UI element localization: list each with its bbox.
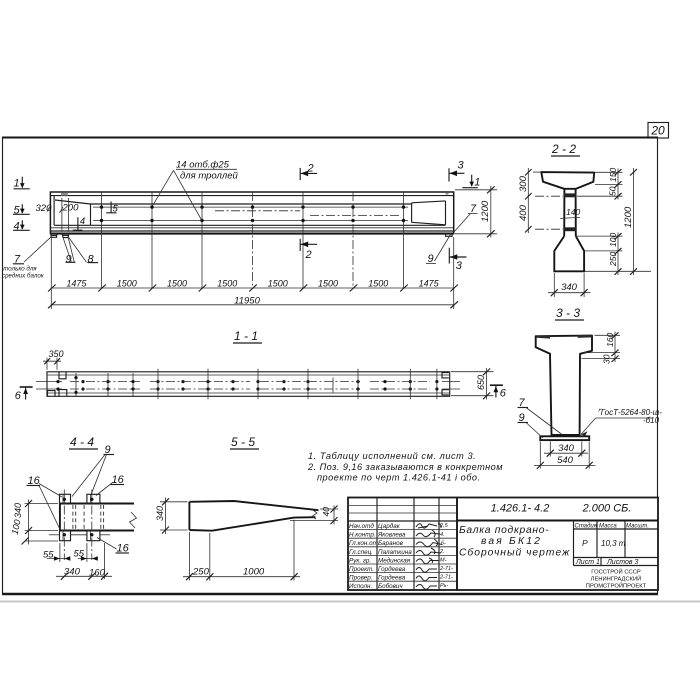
svg-text:2 - 2: 2 - 2 xyxy=(551,142,576,156)
svg-text:1.426.1- 4.2: 1.426.1- 4.2 xyxy=(491,503,550,515)
svg-text:2: 2 xyxy=(307,162,314,174)
svg-text:4: 4 xyxy=(80,216,85,227)
svg-text:400: 400 xyxy=(518,204,529,221)
svg-text:20: 20 xyxy=(650,124,665,138)
svg-text:Цардак: Цардак xyxy=(378,522,401,530)
svg-text:250: 250 xyxy=(192,567,210,578)
svg-text:Палаткина: Палаткина xyxy=(378,549,412,556)
svg-text:2,5: 2,5 xyxy=(439,523,449,529)
svg-text:340: 340 xyxy=(561,282,578,293)
svg-text:3: 3 xyxy=(456,260,463,272)
svg-text:2: 2 xyxy=(305,249,312,261)
svg-text:1200: 1200 xyxy=(480,200,491,222)
svg-text:140: 140 xyxy=(566,207,580,217)
svg-text:340: 340 xyxy=(13,503,23,518)
svg-text:1475: 1475 xyxy=(66,278,87,288)
svg-text:2.000 СБ.: 2.000 СБ. xyxy=(582,503,632,515)
svg-text:1 - 1: 1 - 1 xyxy=(234,329,258,343)
svg-text:4.: 4. xyxy=(440,532,445,538)
svg-text:6-: 6- xyxy=(441,541,446,547)
svg-text:для троллей: для троллей xyxy=(180,171,238,182)
svg-text:3 - 3: 3 - 3 xyxy=(556,306,580,320)
svg-text:Сборочный чертеж: Сборочный чертеж xyxy=(459,547,570,559)
svg-text:5: 5 xyxy=(113,204,119,215)
svg-text:160: 160 xyxy=(605,333,615,347)
svg-text:М-: М- xyxy=(440,558,447,564)
svg-text:ГОССТРОЙ СССР: ГОССТРОЙ СССР xyxy=(591,568,641,576)
svg-text:350: 350 xyxy=(49,349,64,359)
svg-text:Рук. гр.: Рук. гр. xyxy=(349,557,371,564)
svg-text:1: 1 xyxy=(474,176,480,188)
svg-text:6: 6 xyxy=(15,390,22,402)
svg-text:160: 160 xyxy=(89,568,106,579)
svg-text:1500: 1500 xyxy=(117,278,137,288)
svg-text:2.: 2. xyxy=(439,549,445,555)
svg-text:-б10: -б10 xyxy=(643,416,660,425)
svg-text:320: 320 xyxy=(36,203,53,214)
svg-text:1500: 1500 xyxy=(368,278,388,288)
svg-text:10,3 т: 10,3 т xyxy=(601,539,626,548)
svg-text:340: 340 xyxy=(155,506,165,521)
svg-text:Гордеева: Гордеева xyxy=(378,565,406,573)
svg-text:5 - 5: 5 - 5 xyxy=(231,435,255,449)
svg-text:Р: Р xyxy=(582,538,588,548)
svg-text:5: 5 xyxy=(14,205,21,217)
svg-text:1475: 1475 xyxy=(419,278,440,288)
svg-text:Бобович: Бобович xyxy=(378,582,403,590)
svg-text:Гордеева: Гордеева xyxy=(378,574,406,582)
svg-text:650: 650 xyxy=(476,375,486,390)
svg-text:Исполн.: Исполн. xyxy=(349,583,372,590)
svg-text:2. Поз. 9,16 заказываются в ко: 2. Поз. 9,16 заказываются в конкретном xyxy=(307,462,503,472)
svg-text:150: 150 xyxy=(608,168,618,182)
svg-text:средних балок: средних балок xyxy=(2,272,45,279)
svg-text:50: 50 xyxy=(608,186,618,196)
svg-text:250: 250 xyxy=(608,252,618,267)
svg-text:Балка подкрано-: Балка подкрано- xyxy=(459,525,549,536)
svg-text:Лист 1: Лист 1 xyxy=(575,559,600,566)
svg-text:1200: 1200 xyxy=(623,206,634,228)
svg-text:Провер.: Провер. xyxy=(349,575,372,582)
svg-text:Проект.: Проект. xyxy=(349,566,374,573)
svg-text:8: 8 xyxy=(88,253,95,265)
svg-text:Баранов: Баранов xyxy=(378,540,404,547)
svg-text:проекте по черт 1.426.1-41 i о: проекте по черт 1.426.1-41 i обо. xyxy=(317,473,481,483)
svg-text:6: 6 xyxy=(500,388,507,400)
svg-text:1500: 1500 xyxy=(167,278,187,288)
svg-text:Мединская: Мединская xyxy=(378,556,411,564)
svg-text:1: 1 xyxy=(14,177,20,189)
svg-text:4 - 4: 4 - 4 xyxy=(70,435,94,449)
svg-text:Гл.кон.от: Гл.кон.от xyxy=(349,540,378,547)
svg-text:Листов 3: Листов 3 xyxy=(606,559,638,566)
svg-text:11950: 11950 xyxy=(234,296,260,307)
svg-text:340: 340 xyxy=(64,567,81,578)
svg-text:1. Таблицу исполнений см. лис: 1. Таблицу исполнений см. лист 3. xyxy=(308,451,476,461)
svg-text:14 отб.ф25: 14 отб.ф25 xyxy=(176,160,230,171)
svg-text:2-71-: 2-71- xyxy=(439,575,453,581)
svg-text:Гл.спец.: Гл.спец. xyxy=(349,549,373,556)
svg-text:1500: 1500 xyxy=(268,278,288,288)
svg-text:40: 40 xyxy=(321,507,331,517)
svg-text:Масшт.: Масшт. xyxy=(626,524,649,530)
svg-text:Нач.отд: Нач.отд xyxy=(349,522,374,530)
svg-text:Масса: Масса xyxy=(599,524,617,530)
svg-text:вая БК12: вая БК12 xyxy=(481,536,542,547)
svg-text:55: 55 xyxy=(43,550,54,561)
svg-text:340: 340 xyxy=(558,443,575,454)
svg-text:30: 30 xyxy=(602,354,612,364)
svg-text:Яковлева: Яковлева xyxy=(377,532,406,539)
svg-text:ЛЕНИНГРАДСКИЙ: ЛЕНИНГРАДСКИЙ xyxy=(591,575,642,583)
svg-text:ПРОМСТРОЙПРОЕКТ: ПРОМСТРОЙПРОЕКТ xyxy=(586,582,647,590)
svg-text:Рь-: Рь- xyxy=(440,583,449,589)
svg-text:540: 540 xyxy=(557,455,574,466)
svg-text:Н.контр.: Н.контр. xyxy=(349,532,376,539)
svg-text:200: 200 xyxy=(62,202,80,213)
svg-text:100: 100 xyxy=(608,233,618,247)
svg-text:3: 3 xyxy=(458,160,465,172)
svg-text:1000: 1000 xyxy=(243,567,265,578)
svg-text:2-71-: 2-71- xyxy=(439,566,453,572)
svg-text:1500: 1500 xyxy=(318,278,338,288)
svg-text:1500: 1500 xyxy=(217,278,237,288)
svg-text:Стадия: Стадия xyxy=(575,524,598,530)
svg-text:300: 300 xyxy=(518,175,529,192)
